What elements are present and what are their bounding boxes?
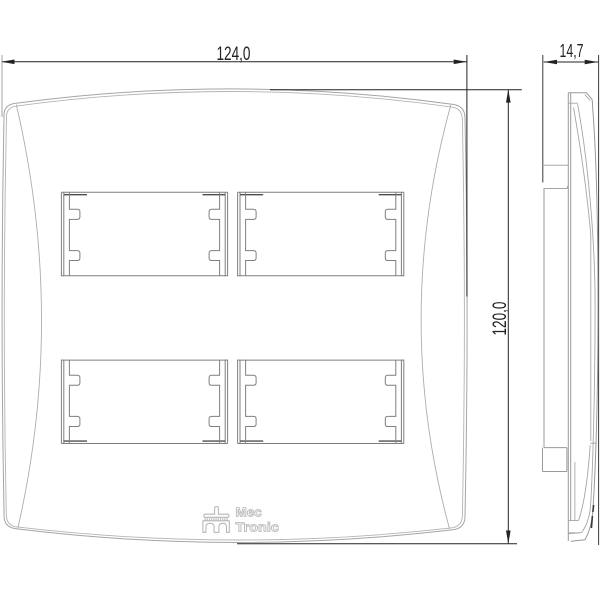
svg-text:Tronic: Tronic [236,520,280,535]
svg-text:Mec: Mec [236,504,262,519]
svg-text:124,0: 124,0 [217,43,251,65]
svg-text:120,0: 120,0 [489,301,511,335]
svg-text:14,7: 14,7 [560,41,584,61]
